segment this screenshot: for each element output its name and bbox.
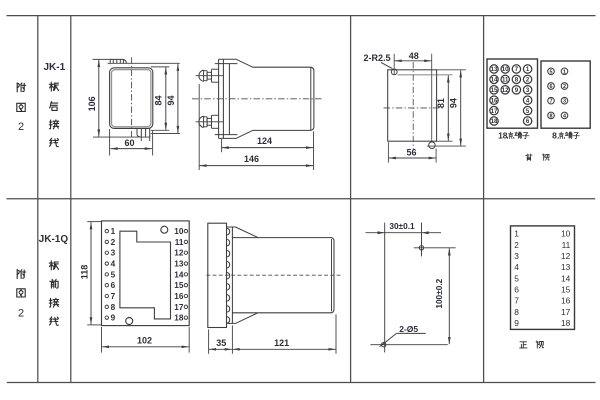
svg-text:30±0.1: 30±0.1 xyxy=(389,221,415,231)
svg-text:6: 6 xyxy=(514,285,519,295)
svg-text:12: 12 xyxy=(502,87,509,94)
svg-text:3: 3 xyxy=(111,249,116,258)
svg-text:13: 13 xyxy=(491,66,498,73)
svg-text:17: 17 xyxy=(561,307,571,317)
svg-text:4: 4 xyxy=(111,260,116,269)
svg-text:8: 8 xyxy=(552,131,557,141)
svg-text:56: 56 xyxy=(406,148,416,158)
svg-text:1: 1 xyxy=(111,227,116,236)
svg-text:18: 18 xyxy=(491,118,498,125)
svg-text:9: 9 xyxy=(515,87,519,94)
svg-text:18: 18 xyxy=(498,131,508,141)
svg-text:18: 18 xyxy=(174,314,184,323)
svg-text:2: 2 xyxy=(514,240,519,250)
svg-text:16: 16 xyxy=(561,296,571,306)
svg-text:10: 10 xyxy=(174,227,184,236)
svg-text:15: 15 xyxy=(561,285,571,295)
svg-text:18: 18 xyxy=(561,318,571,328)
svg-text:94: 94 xyxy=(448,98,458,108)
svg-text:102: 102 xyxy=(137,336,152,346)
svg-text:2: 2 xyxy=(18,308,24,320)
svg-text:35: 35 xyxy=(216,338,226,348)
svg-text:106: 106 xyxy=(87,96,97,111)
svg-text:14: 14 xyxy=(174,270,184,279)
svg-text:118: 118 xyxy=(79,265,89,280)
svg-text:2-R2.5: 2-R2.5 xyxy=(363,53,390,63)
svg-text:60: 60 xyxy=(124,138,134,148)
svg-text:11: 11 xyxy=(562,240,571,250)
svg-text:1: 1 xyxy=(514,229,519,239)
svg-text:6: 6 xyxy=(549,84,552,90)
svg-text:13: 13 xyxy=(561,262,571,272)
svg-text:7: 7 xyxy=(514,296,519,306)
svg-text:14: 14 xyxy=(561,273,571,283)
svg-text:5: 5 xyxy=(514,273,519,283)
svg-text:8: 8 xyxy=(111,303,116,312)
svg-text:8: 8 xyxy=(514,307,519,317)
svg-text:7: 7 xyxy=(549,99,552,105)
svg-text:7: 7 xyxy=(515,66,519,73)
svg-text:5: 5 xyxy=(549,69,552,75)
svg-text:1: 1 xyxy=(563,69,566,75)
svg-text:12: 12 xyxy=(561,251,571,261)
svg-text:124: 124 xyxy=(257,136,272,146)
svg-text:100±0.2: 100±0.2 xyxy=(434,278,444,308)
svg-text:2: 2 xyxy=(111,238,116,247)
svg-text:6: 6 xyxy=(111,281,116,290)
svg-text:15: 15 xyxy=(174,281,184,290)
svg-text:12: 12 xyxy=(174,249,184,258)
svg-text:10: 10 xyxy=(561,229,571,239)
svg-text:2: 2 xyxy=(563,84,566,90)
svg-text:13: 13 xyxy=(174,260,184,269)
svg-text:94: 94 xyxy=(166,95,176,105)
svg-text:11: 11 xyxy=(502,77,509,84)
svg-text:84: 84 xyxy=(154,95,164,105)
svg-text:9: 9 xyxy=(514,318,519,328)
svg-text:17: 17 xyxy=(174,303,184,312)
svg-text:2-Ø5: 2-Ø5 xyxy=(399,324,418,334)
svg-text:4: 4 xyxy=(514,262,519,272)
svg-text:3: 3 xyxy=(563,99,566,105)
svg-text:11: 11 xyxy=(175,238,184,247)
svg-text:5: 5 xyxy=(111,270,116,279)
svg-text:17: 17 xyxy=(491,108,498,115)
svg-text:JK-1Q: JK-1Q xyxy=(39,234,69,245)
svg-text:81: 81 xyxy=(436,98,446,108)
svg-text:8: 8 xyxy=(515,77,519,84)
svg-text:3: 3 xyxy=(514,251,519,261)
svg-text:8: 8 xyxy=(549,113,552,119)
svg-text:10: 10 xyxy=(502,66,509,73)
svg-text:2: 2 xyxy=(18,121,24,133)
svg-text:16: 16 xyxy=(174,292,184,301)
svg-text:7: 7 xyxy=(111,292,116,301)
svg-text:14: 14 xyxy=(491,77,498,84)
svg-text:9: 9 xyxy=(111,314,116,323)
svg-text:146: 146 xyxy=(244,154,259,164)
svg-text:121: 121 xyxy=(274,338,289,348)
svg-text:48: 48 xyxy=(409,51,419,61)
svg-text:16: 16 xyxy=(491,97,498,104)
svg-text:JK-1: JK-1 xyxy=(43,62,65,73)
svg-text:15: 15 xyxy=(491,87,498,94)
